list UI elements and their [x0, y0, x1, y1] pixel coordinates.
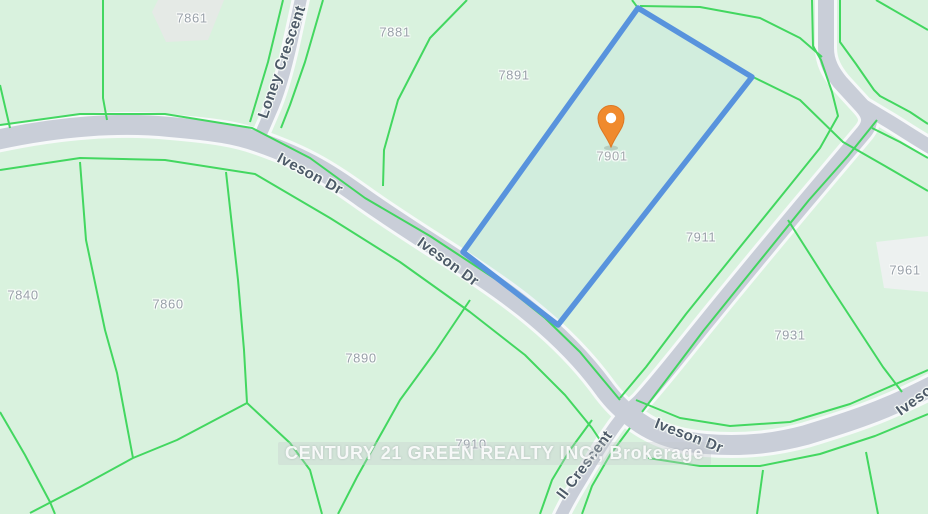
map-canvas[interactable]: 7861 7881 7891 7911 7961 7931 7840 7860 …	[0, 0, 928, 514]
pin-hole	[606, 113, 616, 123]
map-artwork	[0, 0, 928, 514]
building-footprint	[876, 236, 928, 292]
